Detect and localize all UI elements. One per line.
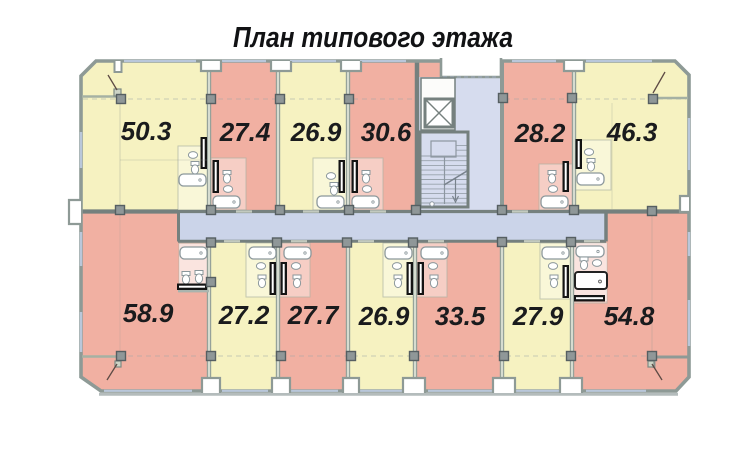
svg-text:50.3: 50.3 (121, 116, 172, 146)
svg-text:46.3: 46.3 (606, 117, 658, 147)
svg-text:58.9: 58.9 (123, 298, 174, 328)
svg-text:26.9: 26.9 (290, 117, 342, 147)
svg-text:28.2: 28.2 (514, 118, 566, 148)
svg-text:27.7: 27.7 (287, 300, 340, 330)
svg-text:27.4: 27.4 (219, 117, 271, 147)
svg-text:26.9: 26.9 (358, 301, 410, 331)
svg-text:54.8: 54.8 (604, 301, 655, 331)
svg-text:27.2: 27.2 (218, 300, 270, 330)
svg-text:30.6: 30.6 (361, 117, 412, 147)
svg-text:27.9: 27.9 (512, 301, 564, 331)
svg-text:План типового этажа: План типового этажа (233, 22, 513, 54)
svg-text:33.5: 33.5 (435, 301, 486, 331)
